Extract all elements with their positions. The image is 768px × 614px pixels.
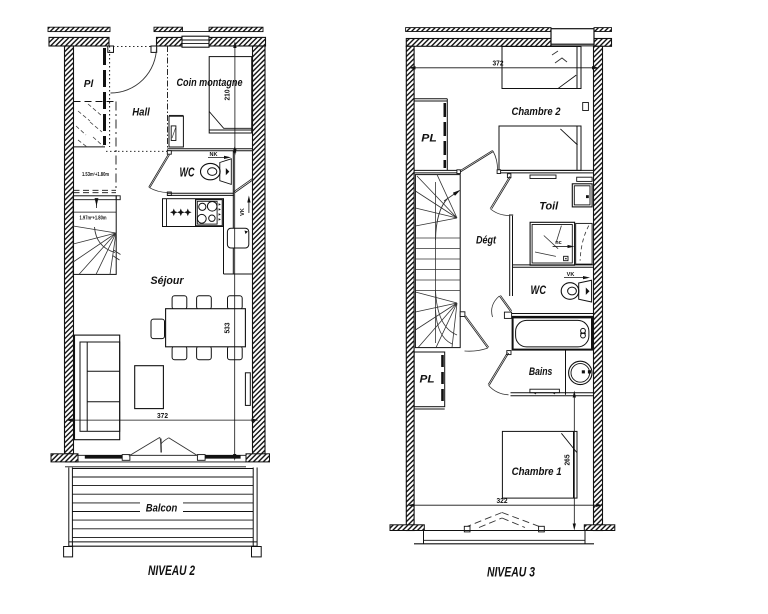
svg-text:Chambre 1: Chambre 1: [512, 466, 562, 478]
svg-text:Hall: Hall: [132, 107, 150, 119]
svg-text:Balcon: Balcon: [146, 503, 178, 515]
svg-text:210: 210: [223, 90, 232, 101]
svg-text:Chambre 2: Chambre 2: [512, 106, 561, 118]
svg-text:VK: VK: [567, 272, 575, 278]
svg-text:265: 265: [563, 455, 572, 466]
svg-text:PL: PL: [420, 374, 435, 386]
svg-text:Séjour: Séjour: [151, 275, 185, 287]
svg-text:533: 533: [223, 323, 232, 334]
svg-text:Bains: Bains: [529, 366, 553, 378]
svg-text:VK: VK: [240, 208, 246, 216]
svg-text:NIVEAU 2: NIVEAU 2: [148, 563, 195, 578]
svg-text:Pl: Pl: [84, 79, 94, 90]
svg-text:NK: NK: [210, 152, 218, 158]
svg-text:1.53m²+1.80m: 1.53m²+1.80m: [82, 172, 109, 178]
svg-text:nc: nc: [555, 240, 561, 246]
svg-text:NIVEAU 3: NIVEAU 3: [487, 565, 535, 580]
svg-text:1.97m²+1.80m: 1.97m²+1.80m: [80, 216, 107, 222]
svg-text:372: 372: [157, 411, 168, 420]
svg-text:Toil: Toil: [539, 201, 559, 213]
svg-text:Dégt: Dégt: [476, 235, 497, 247]
svg-text:WC: WC: [180, 165, 195, 180]
svg-text:PL: PL: [421, 133, 437, 145]
svg-text:WC: WC: [531, 283, 547, 297]
svg-text:322: 322: [497, 496, 508, 505]
